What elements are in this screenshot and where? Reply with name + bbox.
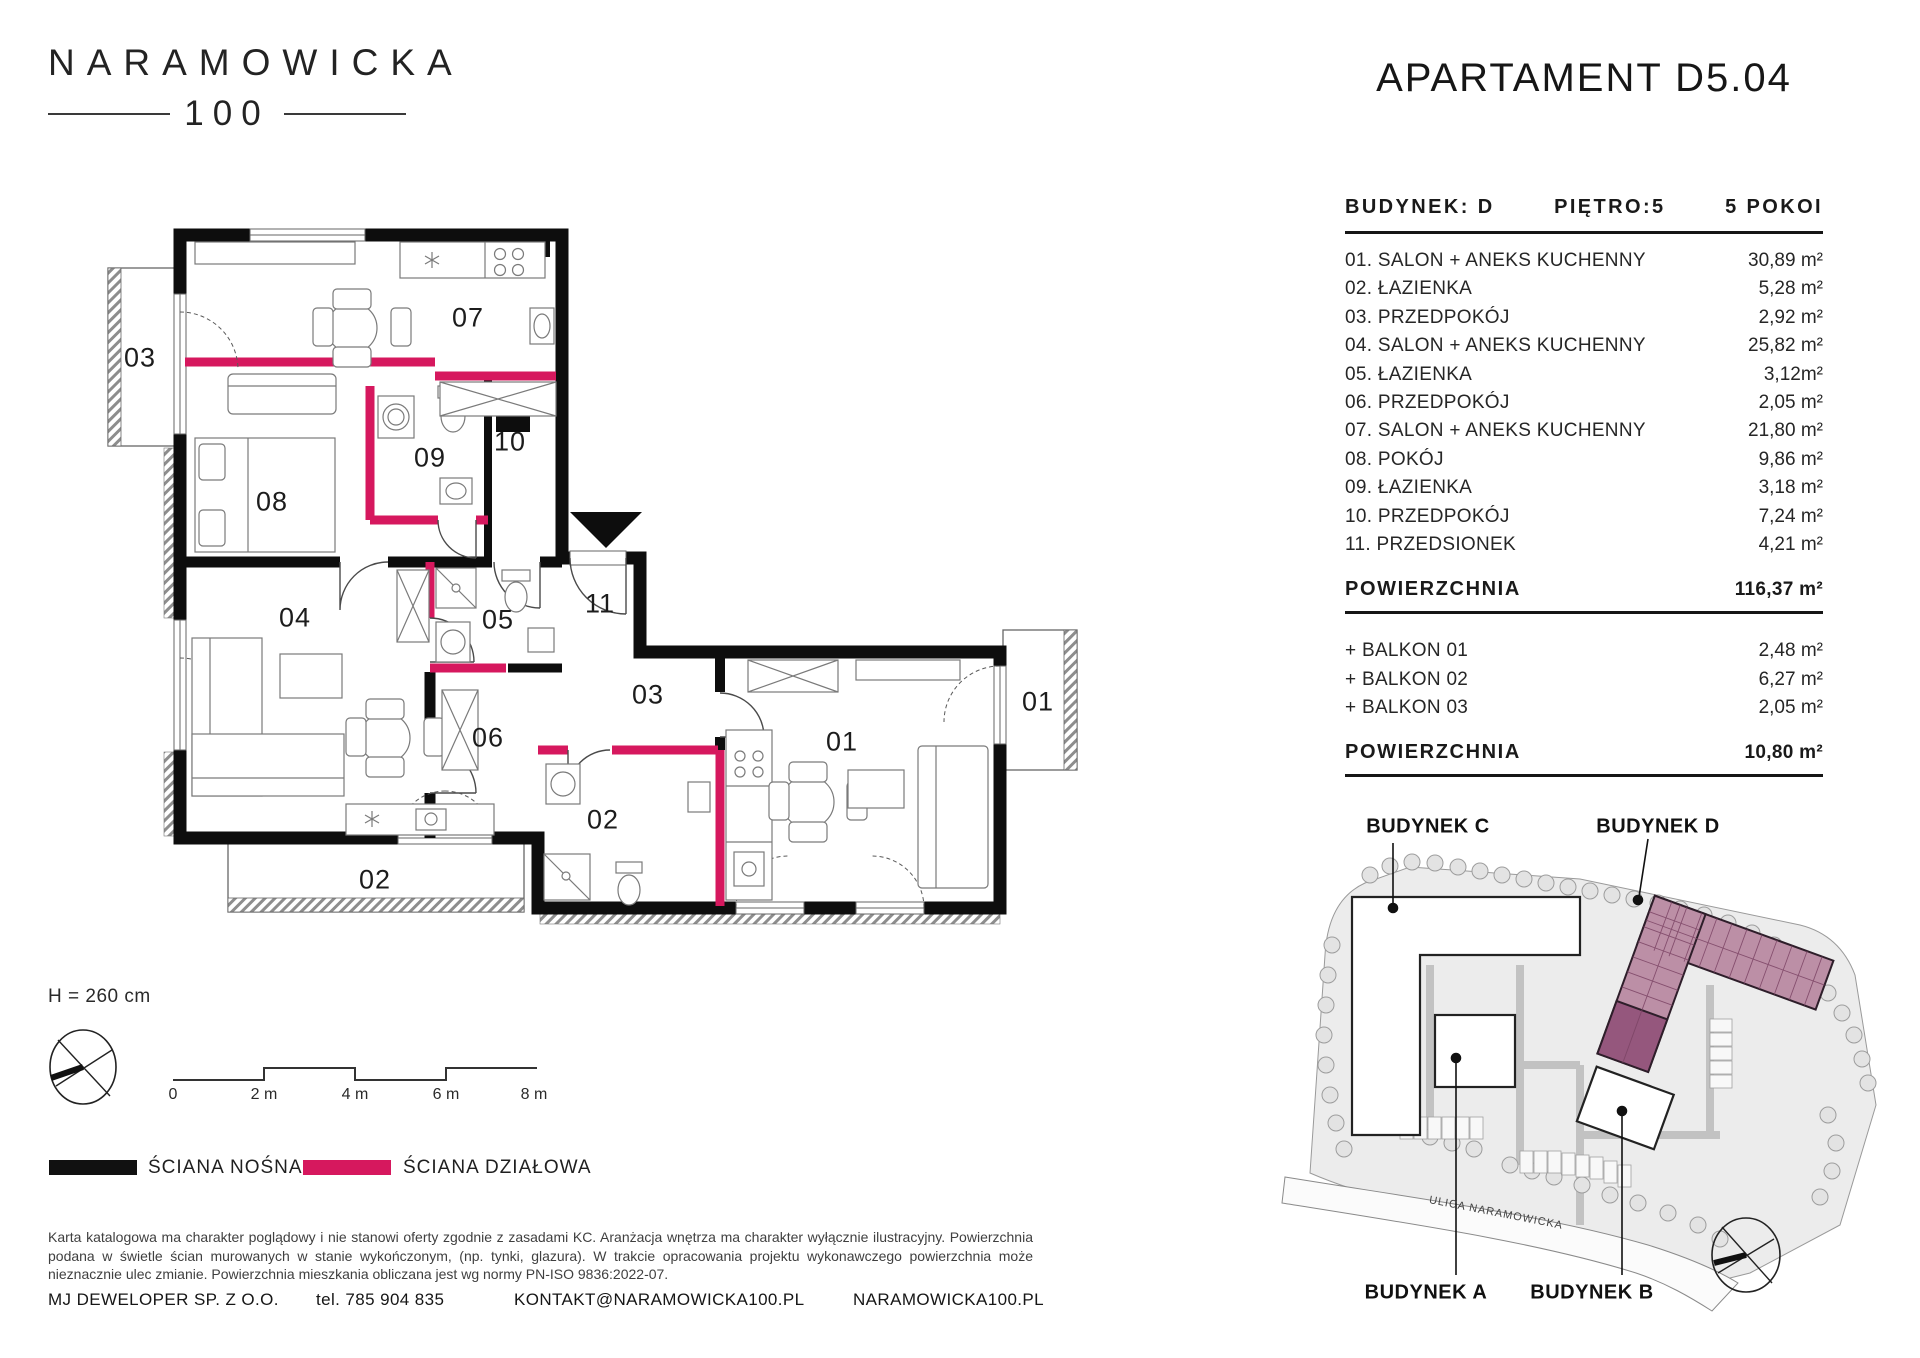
balcony-name: + BALKON 03 <box>1345 697 1468 719</box>
spec-building: BUDYNEK: D <box>1345 196 1495 219</box>
spec-table: BUDYNEK: D PIĘTRO:5 5 POKOI 01. SALON + … <box>1345 196 1823 777</box>
room-name: 07. SALON + ANEKS KUCHENNY <box>1345 420 1646 442</box>
room-name: 03. PRZEDPOKÓJ <box>1345 307 1510 329</box>
logo-name: NARAMOWICKA <box>48 42 418 84</box>
legend-label-load-bearing: ŚCIANA NOŚNA <box>148 1157 303 1179</box>
catalog-card-page: NARAMOWICKA 100 APARTAMENT D5.04 BUDYNEK… <box>0 0 1920 1358</box>
scale-tick-0: 0 <box>169 1086 178 1104</box>
building-a-shape <box>1435 1015 1515 1087</box>
balcony-area: 6,27 m² <box>1759 669 1823 691</box>
room-row: 02. ŁAZIENKA5,28 m² <box>1345 278 1823 306</box>
spec-header: BUDYNEK: D PIĘTRO:5 5 POKOI <box>1345 196 1823 234</box>
logo-rule-left <box>48 113 170 115</box>
total-label: POWIERZCHNIA <box>1345 578 1521 601</box>
site-map-drawing <box>1280 805 1920 1315</box>
balcony-row: + BALKON 032,05 m² <box>1345 697 1823 725</box>
room-row: 01. SALON + ANEKS KUCHENNY30,89 m² <box>1345 250 1823 278</box>
room-name: 09. ŁAZIENKA <box>1345 477 1472 499</box>
logo-number: 100 <box>170 94 283 134</box>
room-area: 7,24 m² <box>1759 506 1823 528</box>
footer-website: NARAMOWICKA100.PL <box>853 1290 1044 1310</box>
room-area: 4,21 m² <box>1759 534 1823 556</box>
footer-email: KONTAKT@NARAMOWICKA100.PL <box>514 1290 805 1310</box>
balcony-total-row: POWIERZCHNIA 10,80 m² <box>1345 741 1823 777</box>
map-label-building-b: BUDYNEK B <box>1530 1282 1653 1305</box>
balcony-total-value: 10,80 m² <box>1745 742 1823 764</box>
room-row: 07. SALON + ANEKS KUCHENNY21,80 m² <box>1345 420 1823 448</box>
disclaimer-text: Karta katalogowa ma charakter poglądowy … <box>48 1228 1033 1284</box>
room-name: 11. PRZEDSIONEK <box>1345 534 1516 556</box>
logo-sub: 100 <box>48 94 406 134</box>
legend-swatch-load-bearing <box>49 1160 137 1175</box>
room-row: 06. PRZEDPOKÓJ2,05 m² <box>1345 392 1823 420</box>
logo-rule-right <box>284 113 406 115</box>
balcony-name: + BALKON 01 <box>1345 640 1468 662</box>
room-row: 10. PRZEDPOKÓJ7,24 m² <box>1345 506 1823 534</box>
room-name: 05. ŁAZIENKA <box>1345 364 1472 386</box>
room-row: 04. SALON + ANEKS KUCHENNY25,82 m² <box>1345 335 1823 363</box>
spec-floor: PIĘTRO:5 <box>1554 196 1665 219</box>
balcony-area: 2,48 m² <box>1759 640 1823 662</box>
room-label-08: 08 <box>256 487 288 518</box>
room-label-02: 02 <box>587 805 619 836</box>
scale-bar <box>170 1050 540 1086</box>
total-value: 116,37 m² <box>1735 579 1823 601</box>
room-label-10: 10 <box>494 427 526 458</box>
room-name: 10. PRZEDPOKÓJ <box>1345 506 1510 528</box>
balcony-label-03: 03 <box>124 343 156 374</box>
site-map: BUDYNEK C BUDYNEK D BUDYNEK A BUDYNEK B … <box>1280 805 1920 1315</box>
room-label-04: 04 <box>279 603 311 634</box>
room-name: 04. SALON + ANEKS KUCHENNY <box>1345 335 1646 357</box>
balcony-area: 2,05 m² <box>1759 697 1823 719</box>
legend-swatch-partition <box>303 1160 391 1175</box>
map-label-building-d: BUDYNEK D <box>1596 816 1719 839</box>
room-name: 01. SALON + ANEKS KUCHENNY <box>1345 250 1646 272</box>
room-label-11: 11 <box>585 589 615 620</box>
room-label-05: 05 <box>482 605 514 636</box>
room-area: 21,80 m² <box>1748 420 1823 442</box>
balcony-row: + BALKON 012,48 m² <box>1345 640 1823 668</box>
balcony-row: + BALKON 026,27 m² <box>1345 669 1823 697</box>
room-label-07: 07 <box>452 303 484 334</box>
footer-phone: tel. 785 904 835 <box>316 1290 444 1310</box>
scale-tick-8m: 8 m <box>521 1086 548 1104</box>
room-row: 05. ŁAZIENKA3,12m² <box>1345 364 1823 392</box>
floor-plan: 07 10 08 09 04 05 06 11 03 02 01 03 02 0… <box>100 190 1100 970</box>
room-area: 3,12m² <box>1764 364 1823 386</box>
ceiling-height-label: H = 260 cm <box>48 986 151 1008</box>
room-name: 06. PRZEDPOKÓJ <box>1345 392 1510 414</box>
scale-tick-6m: 6 m <box>433 1086 460 1104</box>
balcony-label-01: 01 <box>1022 687 1054 718</box>
map-label-building-c: BUDYNEK C <box>1366 816 1489 839</box>
page-title: APARTAMENT D5.04 <box>1345 56 1823 101</box>
balcony-name: + BALKON 02 <box>1345 669 1468 691</box>
scale-tick-4m: 4 m <box>342 1086 369 1104</box>
footer-company: MJ DEWELOPER SP. Z O.O. <box>48 1290 279 1310</box>
room-area: 9,86 m² <box>1759 449 1823 471</box>
total-area-row: POWIERZCHNIA 116,37 m² <box>1345 578 1823 614</box>
room-row: 08. POKÓJ9,86 m² <box>1345 449 1823 477</box>
room-label-06: 06 <box>472 723 504 754</box>
room-area: 25,82 m² <box>1748 335 1823 357</box>
balcony-list: + BALKON 012,48 m² + BALKON 026,27 m² + … <box>1345 640 1823 725</box>
balcony-total-label: POWIERZCHNIA <box>1345 741 1521 764</box>
room-row: 09. ŁAZIENKA3,18 m² <box>1345 477 1823 505</box>
floor-plan-drawing <box>100 190 1100 970</box>
room-label-01: 01 <box>826 727 858 758</box>
balcony-label-02: 02 <box>359 865 391 896</box>
entrance-arrow-icon <box>570 512 642 548</box>
room-area: 3,18 m² <box>1759 477 1823 499</box>
room-area: 30,89 m² <box>1748 250 1823 272</box>
logo: NARAMOWICKA 100 <box>48 42 418 134</box>
room-name: 02. ŁAZIENKA <box>1345 278 1472 300</box>
room-area: 2,92 m² <box>1759 307 1823 329</box>
compass-icon <box>46 1026 122 1108</box>
room-row: 03. PRZEDPOKÓJ2,92 m² <box>1345 307 1823 335</box>
room-area: 5,28 m² <box>1759 278 1823 300</box>
spec-rooms-count: 5 POKOI <box>1725 196 1823 219</box>
room-label-03: 03 <box>632 680 664 711</box>
scale-tick-2m: 2 m <box>251 1086 278 1104</box>
room-list: 01. SALON + ANEKS KUCHENNY30,89 m² 02. Ł… <box>1345 250 1823 562</box>
room-row: 11. PRZEDSIONEK4,21 m² <box>1345 534 1823 562</box>
map-label-building-a: BUDYNEK A <box>1365 1282 1488 1305</box>
room-name: 08. POKÓJ <box>1345 449 1444 471</box>
legend-label-partition: ŚCIANA DZIAŁOWA <box>403 1157 592 1179</box>
room-area: 2,05 m² <box>1759 392 1823 414</box>
room-label-09: 09 <box>414 443 446 474</box>
